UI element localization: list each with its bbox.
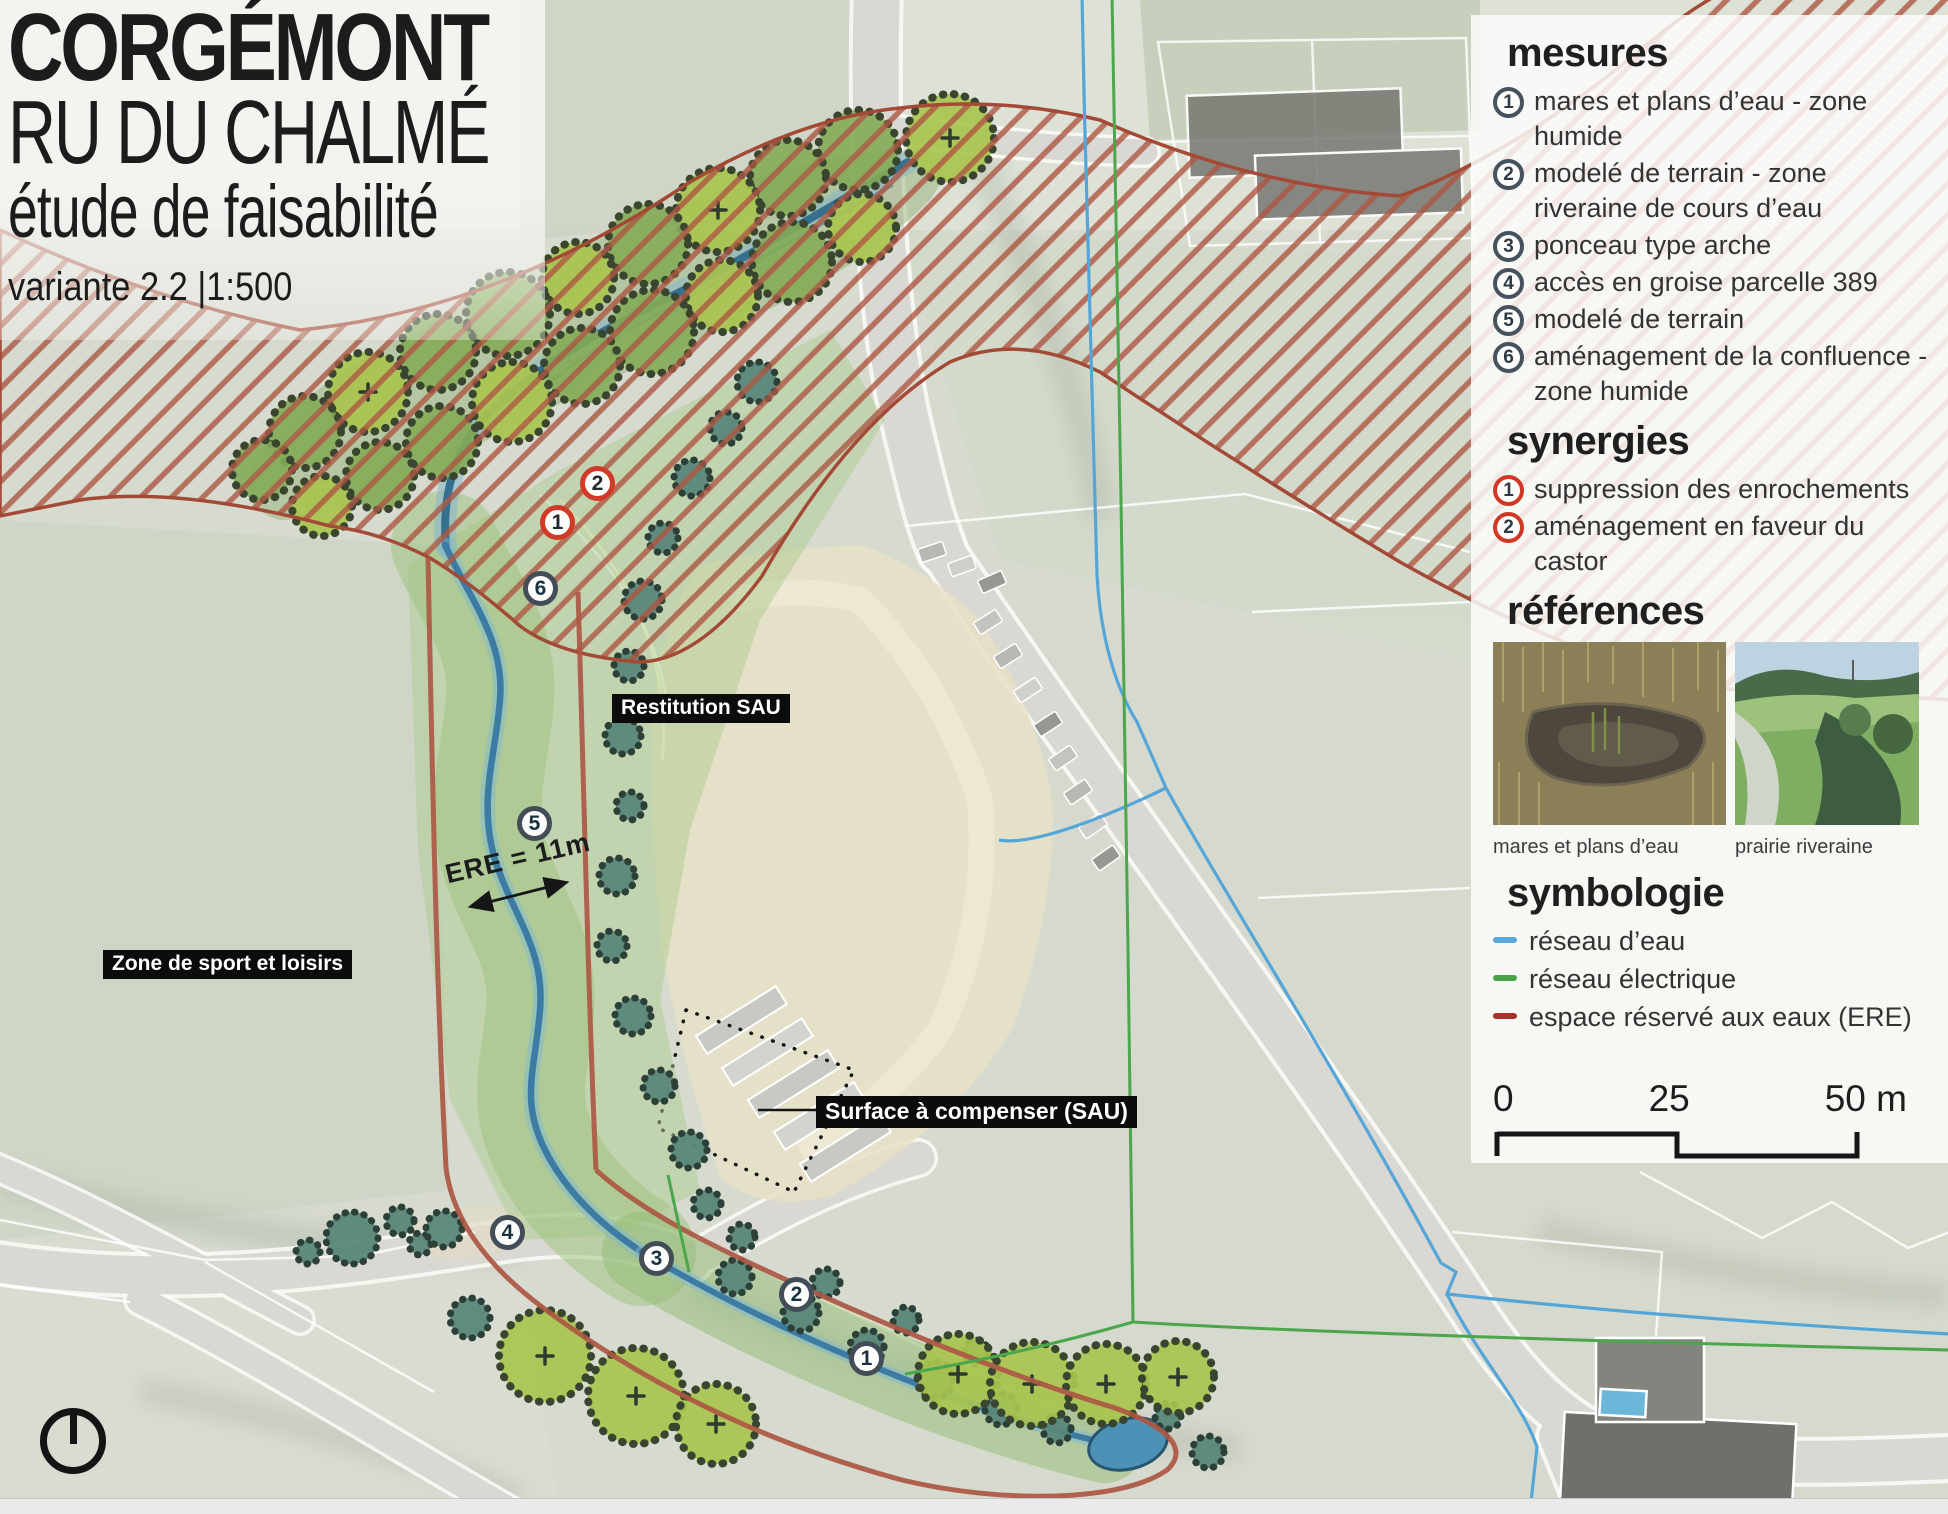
plan-study-type: étude de faisabilité <box>8 175 395 249</box>
symbology-item-electric: réseau électrique <box>1493 962 1930 996</box>
title-block: CORGÉMONT RU DU CHALMÉ étude de faisabil… <box>0 0 545 340</box>
mesure-item: 1 mares et plans d’eau - zone humide <box>1493 84 1930 154</box>
legend-panel: mesures 1 mares et plans d’eau - zone hu… <box>1471 15 1948 1163</box>
mesure-item: 3 ponceau type arche <box>1493 228 1930 263</box>
mesure-2-badge: 2 <box>1493 159 1524 190</box>
label-surface-compenser: Surface à compenser (SAU) <box>816 1096 1137 1128</box>
scale-bar: 0 25 50 m <box>1493 1078 1907 1167</box>
plan-subtitle: RU DU CHALMÉ <box>8 92 405 175</box>
symbologie-heading: symbologie <box>1507 871 1930 916</box>
map-marker-synergie-2: 2 <box>580 466 615 501</box>
plan-canvas: .tg{fill:#84ab57;fill-opacity:.9;stroke:… <box>0 0 1948 1514</box>
map-marker-mesure-6: 6 <box>523 571 558 606</box>
photo-caption: mares et plans d’eau <box>1493 836 1726 859</box>
references-heading: références <box>1507 589 1930 634</box>
photo-meadow-illustration <box>1735 642 1919 825</box>
map-marker-mesure-3: 3 <box>639 1241 674 1276</box>
mesure-item: 6 aménagement de la confluence - zone hu… <box>1493 339 1930 409</box>
ere-line-swatch <box>1493 1013 1517 1020</box>
mesures-heading: mesures <box>1507 31 1930 76</box>
synergies-heading: synergies <box>1507 419 1930 464</box>
photo-pond-illustration <box>1493 642 1726 825</box>
label-restitution-sau: Restitution SAU <box>612 694 790 723</box>
mesure-item: 4 accès en groise parcelle 389 <box>1493 265 1930 300</box>
mesure-3-badge: 3 <box>1493 231 1524 262</box>
map-marker-mesure-4: 4 <box>490 1215 525 1250</box>
electric-line-swatch <box>1493 975 1517 982</box>
north-arrow-icon <box>40 1408 106 1474</box>
reference-photo-mares: mares et plans d’eau <box>1493 642 1726 859</box>
symbology-item-ere: espace réservé aux eaux (ERE) <box>1493 1000 1930 1034</box>
scale-25: 25 <box>1649 1078 1690 1120</box>
synergie-item: 2 aménagement en faveur du castor <box>1493 509 1930 579</box>
plan-variant-scale: variante 2.2 |1:500 <box>8 265 470 309</box>
plan-title: CORGÉMONT <box>8 4 438 92</box>
label-zone-sport: Zone de sport et loisirs <box>103 950 352 979</box>
scale-50: 50 m <box>1825 1078 1907 1120</box>
water-line-swatch <box>1493 937 1517 944</box>
synergie-1-badge: 1 <box>1493 475 1524 506</box>
bottom-strip <box>0 1498 1948 1514</box>
mesure-4-badge: 4 <box>1493 268 1524 299</box>
map-marker-mesure-5: 5 <box>517 806 552 841</box>
scale-bar-graphic <box>1493 1126 1907 1162</box>
mesure-item: 5 modelé de terrain <box>1493 302 1930 337</box>
reference-photo-prairie: prairie riveraine <box>1735 642 1919 859</box>
map-marker-mesure-1: 1 <box>849 1341 884 1376</box>
map-marker-synergie-1: 1 <box>540 505 575 540</box>
synergie-item: 1 suppression des enrochements <box>1493 472 1930 507</box>
synergie-2-badge: 2 <box>1493 512 1524 543</box>
scale-0: 0 <box>1493 1078 1514 1120</box>
photo-caption: prairie riveraine <box>1735 836 1919 859</box>
map-marker-mesure-2: 2 <box>779 1277 814 1312</box>
mesure-6-badge: 6 <box>1493 342 1524 373</box>
mesure-5-badge: 5 <box>1493 305 1524 336</box>
mesure-1-badge: 1 <box>1493 87 1524 118</box>
symbology-item-water: réseau d’eau <box>1493 924 1930 958</box>
mesure-item: 2 modelé de terrain - zone riveraine de … <box>1493 156 1930 226</box>
